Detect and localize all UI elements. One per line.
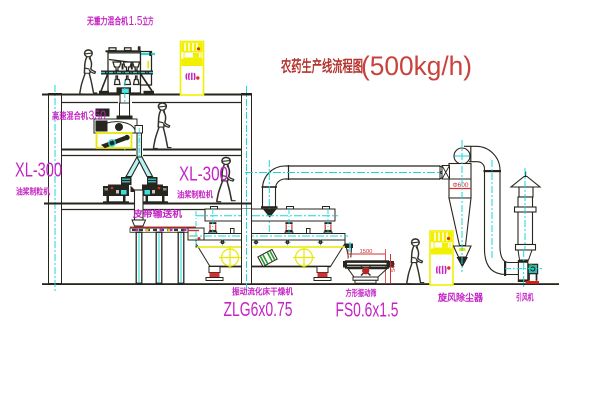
svg-text:油桨制粒机: 油桨制粒机 [16, 187, 51, 197]
svg-text:350: 350 [89, 109, 107, 123]
svg-text:XL-300: XL-300 [15, 160, 62, 182]
svg-text:ZLG6x0.75: ZLG6x0.75 [224, 299, 293, 321]
svg-text:XL-300: XL-300 [179, 164, 228, 186]
svg-text:皮带输送机: 皮带输送机 [132, 208, 183, 219]
svg-text:方形振动筛: 方形振动筛 [346, 287, 377, 298]
svg-text:540: 540 [391, 262, 397, 272]
svg-text:FS0.6x1.5: FS0.6x1.5 [336, 300, 399, 322]
svg-text:引风机: 引风机 [516, 292, 534, 303]
svg-text:1.5: 1.5 [129, 13, 143, 28]
svg-text:农药生产线流程图: 农药生产线流程图 [280, 57, 363, 76]
svg-text:1500: 1500 [360, 249, 373, 255]
svg-text:振动流化床干燥机: 振动流化床干燥机 [232, 286, 293, 297]
svg-text:(500kg/h): (500kg/h) [361, 51, 472, 81]
svg-text:无重力混合机: 无重力混合机 [86, 16, 128, 28]
svg-text:旋风除尘器: 旋风除尘器 [437, 292, 483, 304]
svg-text:立方: 立方 [143, 16, 154, 28]
svg-text:高速混合机: 高速混合机 [52, 110, 88, 121]
svg-text:油桨制粒机: 油桨制粒机 [177, 190, 214, 200]
